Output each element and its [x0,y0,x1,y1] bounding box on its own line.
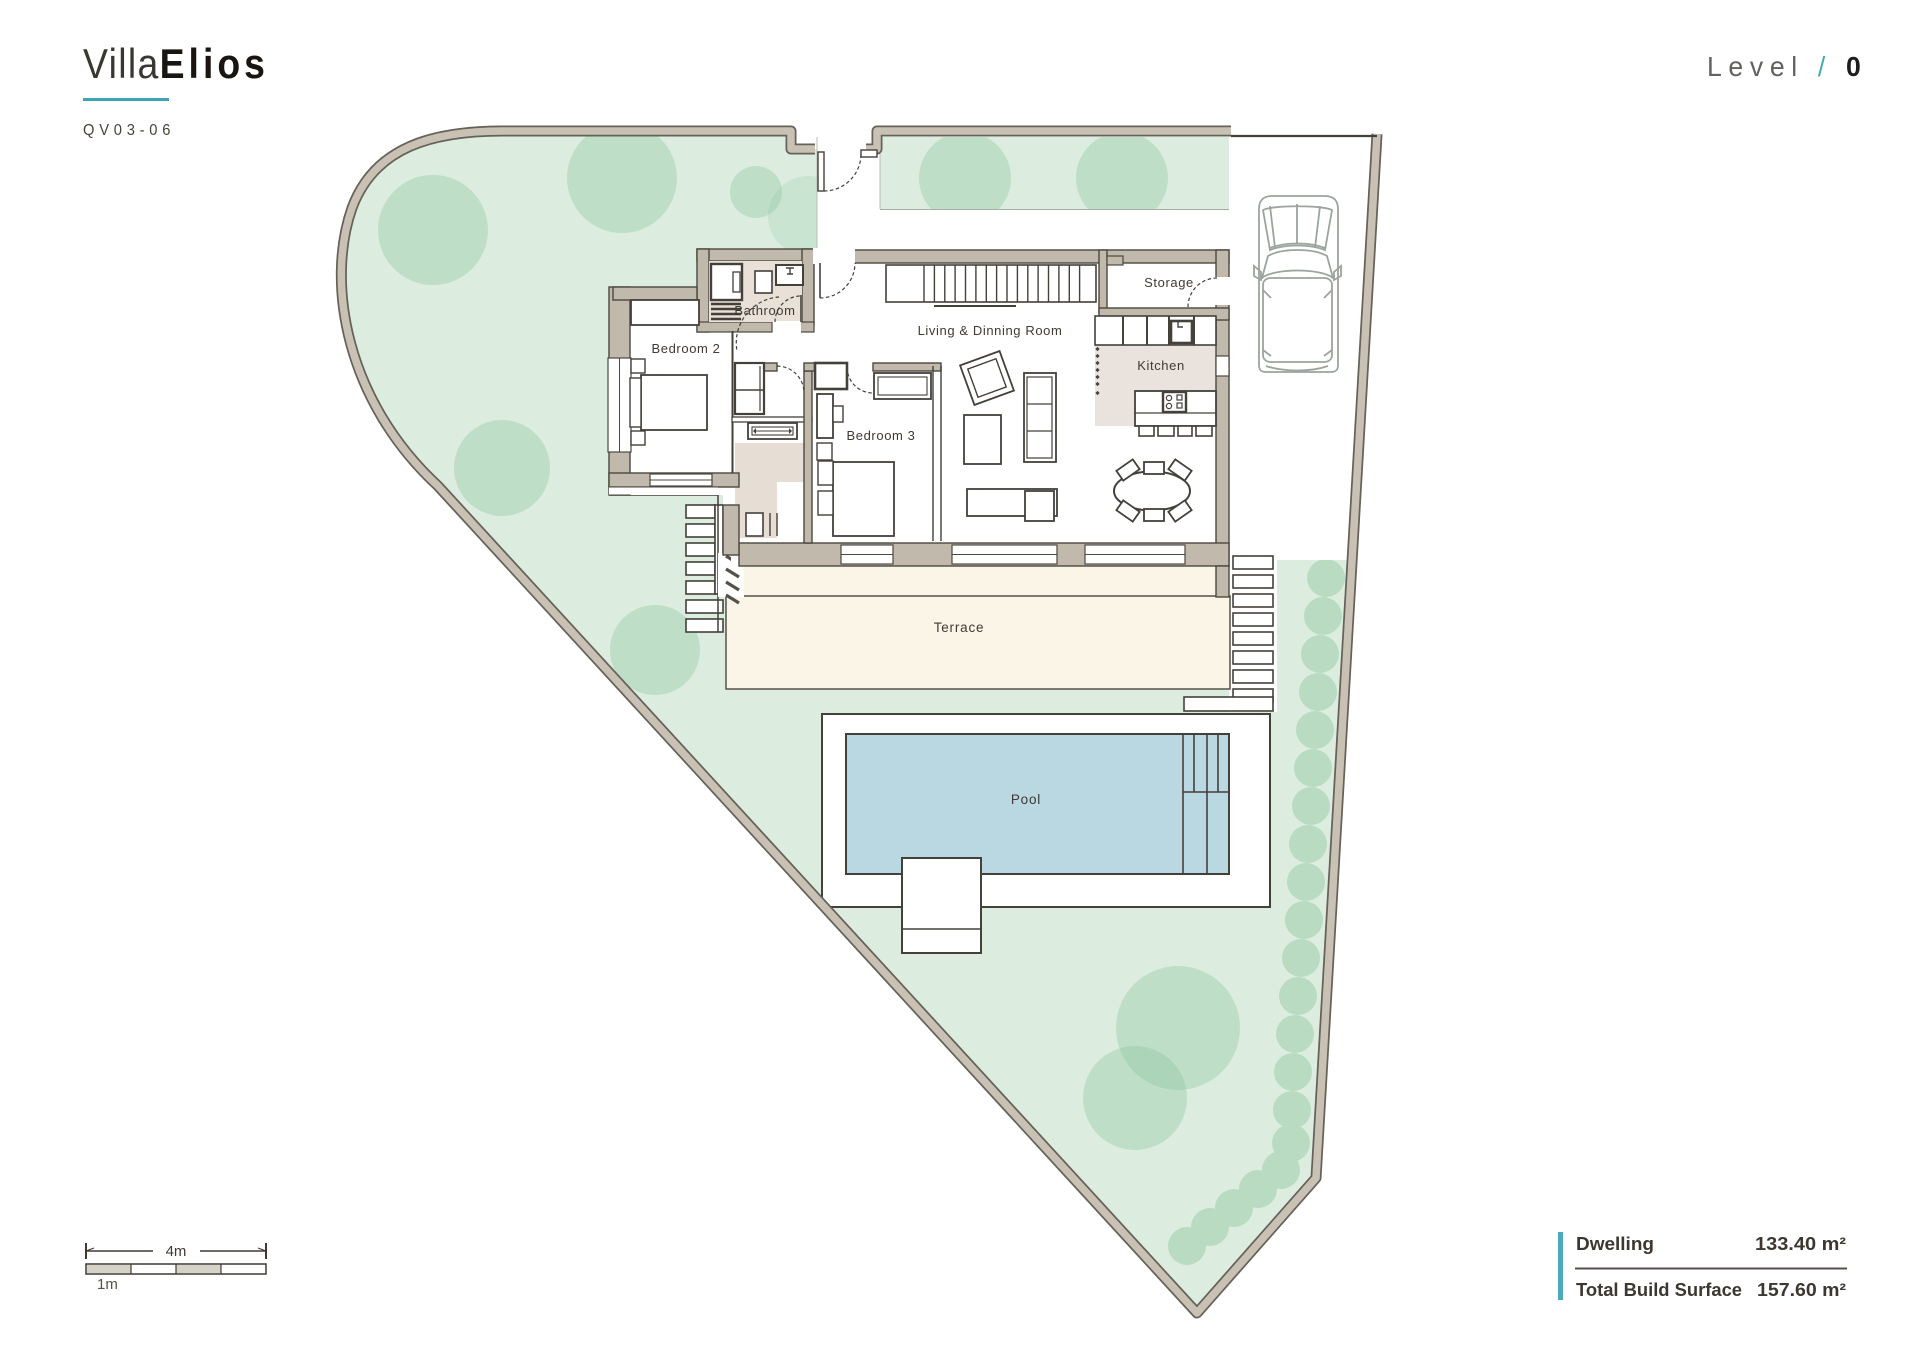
svg-text:Total Build Surface: Total Build Surface [1576,1280,1742,1300]
svg-text:Level / 0: Level / 0 [1707,50,1867,82]
svg-text:QV03-06: QV03-06 [83,122,175,139]
svg-text:Bathroom: Bathroom [734,303,795,318]
svg-text:Storage: Storage [1144,275,1194,290]
svg-text:Bedroom 3: Bedroom 3 [847,428,916,443]
svg-text:157.60 m²: 157.60 m² [1757,1280,1846,1300]
svg-text:Terrace: Terrace [934,620,985,635]
svg-text:VillaElios: VillaElios [83,41,269,87]
svg-text:Kitchen: Kitchen [1137,358,1185,373]
svg-text:Dwelling: Dwelling [1576,1234,1654,1254]
svg-text:4m: 4m [166,1243,187,1260]
svg-text:Bedroom 2: Bedroom 2 [652,341,721,356]
svg-text:Pool: Pool [1011,792,1041,807]
svg-text:1m: 1m [97,1276,118,1293]
svg-text:Living & Dinning Room: Living & Dinning Room [918,323,1063,338]
svg-text:133.40 m²: 133.40 m² [1755,1234,1846,1254]
